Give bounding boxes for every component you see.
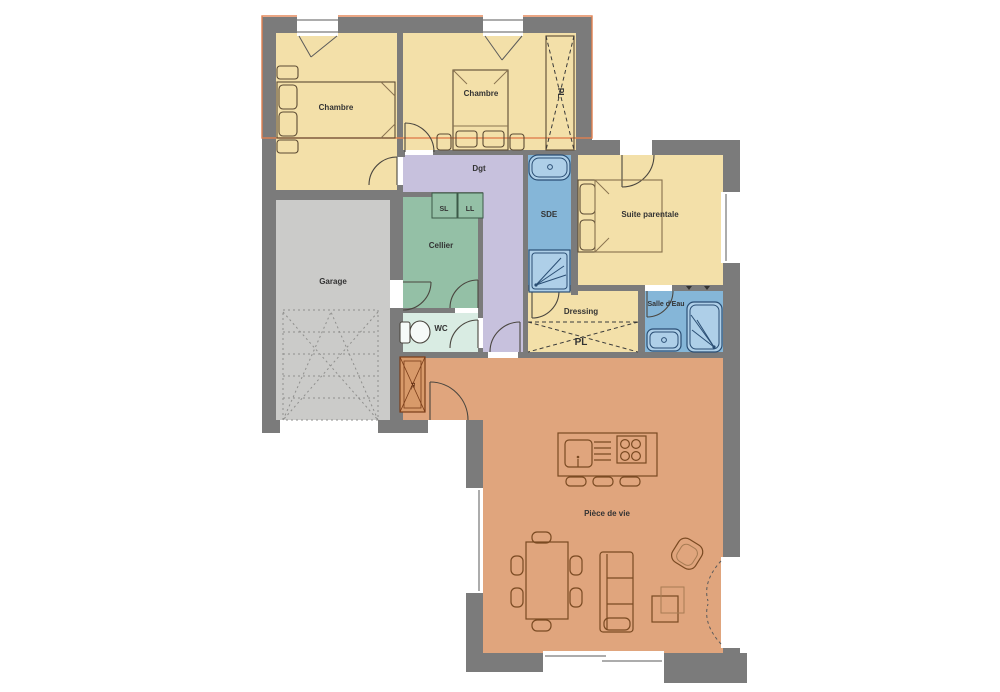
label-dressing: Dressing <box>564 307 598 316</box>
floor-plan-page: PL PL PL <box>0 0 1000 692</box>
closet-pl-entry: PL <box>400 357 425 412</box>
floor-plan: PL PL PL <box>0 0 1000 692</box>
label-piece-de-vie: Pièce de vie <box>584 509 630 518</box>
shower-salle-eau-symbol <box>687 302 722 352</box>
appliance-ll-label: LL <box>466 206 475 213</box>
label-cellier: Cellier <box>429 241 453 250</box>
window-living-left <box>464 488 483 593</box>
label-garage: Garage <box>319 277 347 286</box>
appliance-lave-linge: LL <box>458 193 483 218</box>
room-suite-parentale <box>578 155 723 285</box>
toilet-symbol <box>400 321 430 343</box>
bathtub-symbol <box>529 155 570 180</box>
sink-salle-eau-symbol <box>647 329 681 351</box>
label-chambre-2: Chambre <box>464 89 499 98</box>
closet-pl-dressing-label: PL <box>575 337 588 348</box>
appliance-sl-label: SL <box>440 206 450 213</box>
label-wc: WC <box>434 324 448 333</box>
label-sde: SDE <box>541 210 558 219</box>
room-piece-de-vie <box>403 358 723 653</box>
closet-pl-entry-label: PL <box>409 382 415 390</box>
label-hallway-dgt: Dgt <box>472 164 486 173</box>
label-suite-parentale: Suite parentale <box>621 210 679 219</box>
label-chambre-1: Chambre <box>319 103 354 112</box>
window-suite <box>721 192 740 263</box>
label-salle-eau: Salle d'Eau <box>647 301 684 308</box>
bay-window-living <box>543 651 664 667</box>
closet-pl-top-label: PL <box>556 88 565 98</box>
shower-sde-symbol <box>529 250 570 292</box>
appliance-seche-linge: SL <box>432 193 457 218</box>
